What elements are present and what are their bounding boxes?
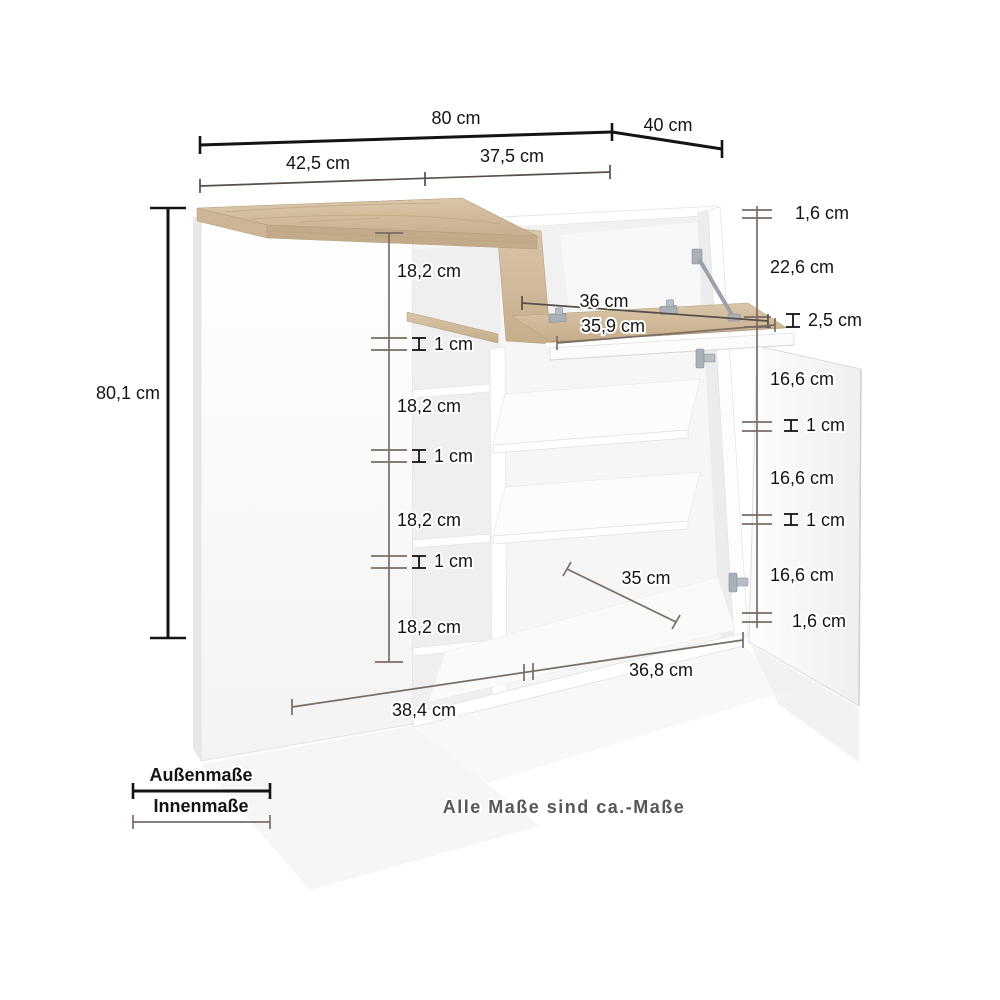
dim-label-right-gap-2: 1 cm [806, 510, 845, 530]
dim-label-left-shelf-4: 18,2 cm [397, 617, 461, 637]
dim-height-outer: 80,1 cm [96, 208, 186, 638]
dim-label-left-gap-2: 1 cm [434, 446, 473, 466]
dim-label-right-flap-compartment: 22,6 cm [770, 257, 834, 277]
cabinet-illustration [193, 198, 861, 890]
dim-label-top-inner-left: 42,5 cm [286, 153, 350, 173]
dim-label-depth-outer: 40 cm [643, 115, 692, 135]
dim-label-left-shelf-2: 18,2 cm [397, 396, 461, 416]
dim-label-top-inner-right: 37,5 cm [480, 146, 544, 166]
dim-label-flap-floor-width: 36 cm [579, 291, 628, 311]
cabinet-left-side-panel [193, 216, 201, 761]
gap-glyph [786, 314, 800, 327]
dim-label-left-shelf-3: 18,2 cm [397, 510, 461, 530]
dim-width-outer: 80 cm [200, 108, 612, 154]
dim-label-left-gap-1: 1 cm [434, 334, 473, 354]
dim-label-right-shelf-2: 16,6 cm [770, 468, 834, 488]
dim-label-left-gap-3: 1 cm [434, 551, 473, 571]
dim-label-bottom-inner-right: 36,8 cm [629, 660, 693, 680]
dim-top-inner: 42,5 cm 37,5 cm [200, 146, 610, 193]
footer-note: Alle Maße sind ca.-Maße [443, 797, 686, 817]
dim-label-flap-width: 35,9 cm [581, 316, 645, 336]
dim-label-bottom-inner-left: 38,4 cm [392, 700, 456, 720]
left-door [201, 221, 413, 761]
diagram-canvas: 80 cm 40 cm 42,5 cm 37,5 cm 80,1 cm 18,2… [0, 0, 1000, 1000]
legend-inner-label: Innenmaße [153, 796, 248, 816]
dim-label-right-bottom-panel: 1,6 cm [792, 611, 846, 631]
dim-label-height-outer: 80,1 cm [96, 383, 160, 403]
dim-depth-outer: 40 cm [612, 115, 722, 158]
dim-label-inner-depth: 35 cm [621, 568, 670, 588]
dim-label-left-shelf-1: 18,2 cm [397, 261, 461, 281]
dim-label-right-shelf-1: 16,6 cm [770, 369, 834, 389]
dim-label-right-gap-1: 1 cm [806, 415, 845, 435]
furniture-dimension-diagram: 80 cm 40 cm 42,5 cm 37,5 cm 80,1 cm 18,2… [0, 0, 1000, 1000]
dim-label-right-flap-thickness: 2,5 cm [808, 310, 862, 330]
dim-label-width-outer: 80 cm [431, 108, 480, 128]
dim-label-right-shelf-3: 16,6 cm [770, 565, 834, 585]
dim-label-right-top-panel: 1,6 cm [795, 203, 849, 223]
legend-outer-label: Außenmaße [149, 765, 252, 785]
